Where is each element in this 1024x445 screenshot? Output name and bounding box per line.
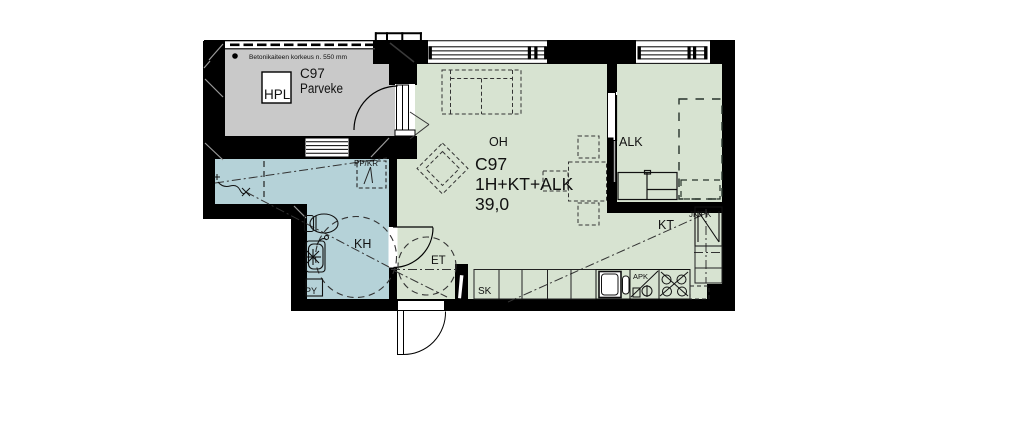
svg-text:C97: C97 — [300, 66, 325, 81]
svg-text:ET: ET — [431, 255, 446, 267]
svg-text:PY: PY — [305, 286, 317, 296]
svg-text:39,0: 39,0 — [475, 194, 509, 214]
svg-text:APK: APK — [633, 272, 648, 281]
svg-text:1H+KT+ALK: 1H+KT+ALK — [475, 174, 574, 194]
svg-text:PP/KR: PP/KR — [354, 159, 378, 168]
svg-text:SK: SK — [478, 286, 492, 297]
svg-text:Parveke: Parveke — [300, 81, 343, 96]
svg-text:ALK: ALK — [619, 135, 643, 149]
svg-text:KH: KH — [354, 237, 371, 251]
svg-text:Betonikaiteen korkeus n. 550 m: Betonikaiteen korkeus n. 550 mm — [249, 54, 347, 61]
svg-text:JK/PK: JK/PK — [689, 210, 712, 219]
svg-text:OH: OH — [489, 135, 508, 149]
svg-text:HPL: HPL — [264, 87, 291, 102]
svg-text:KT: KT — [658, 218, 674, 232]
svg-text:C97: C97 — [475, 154, 507, 174]
